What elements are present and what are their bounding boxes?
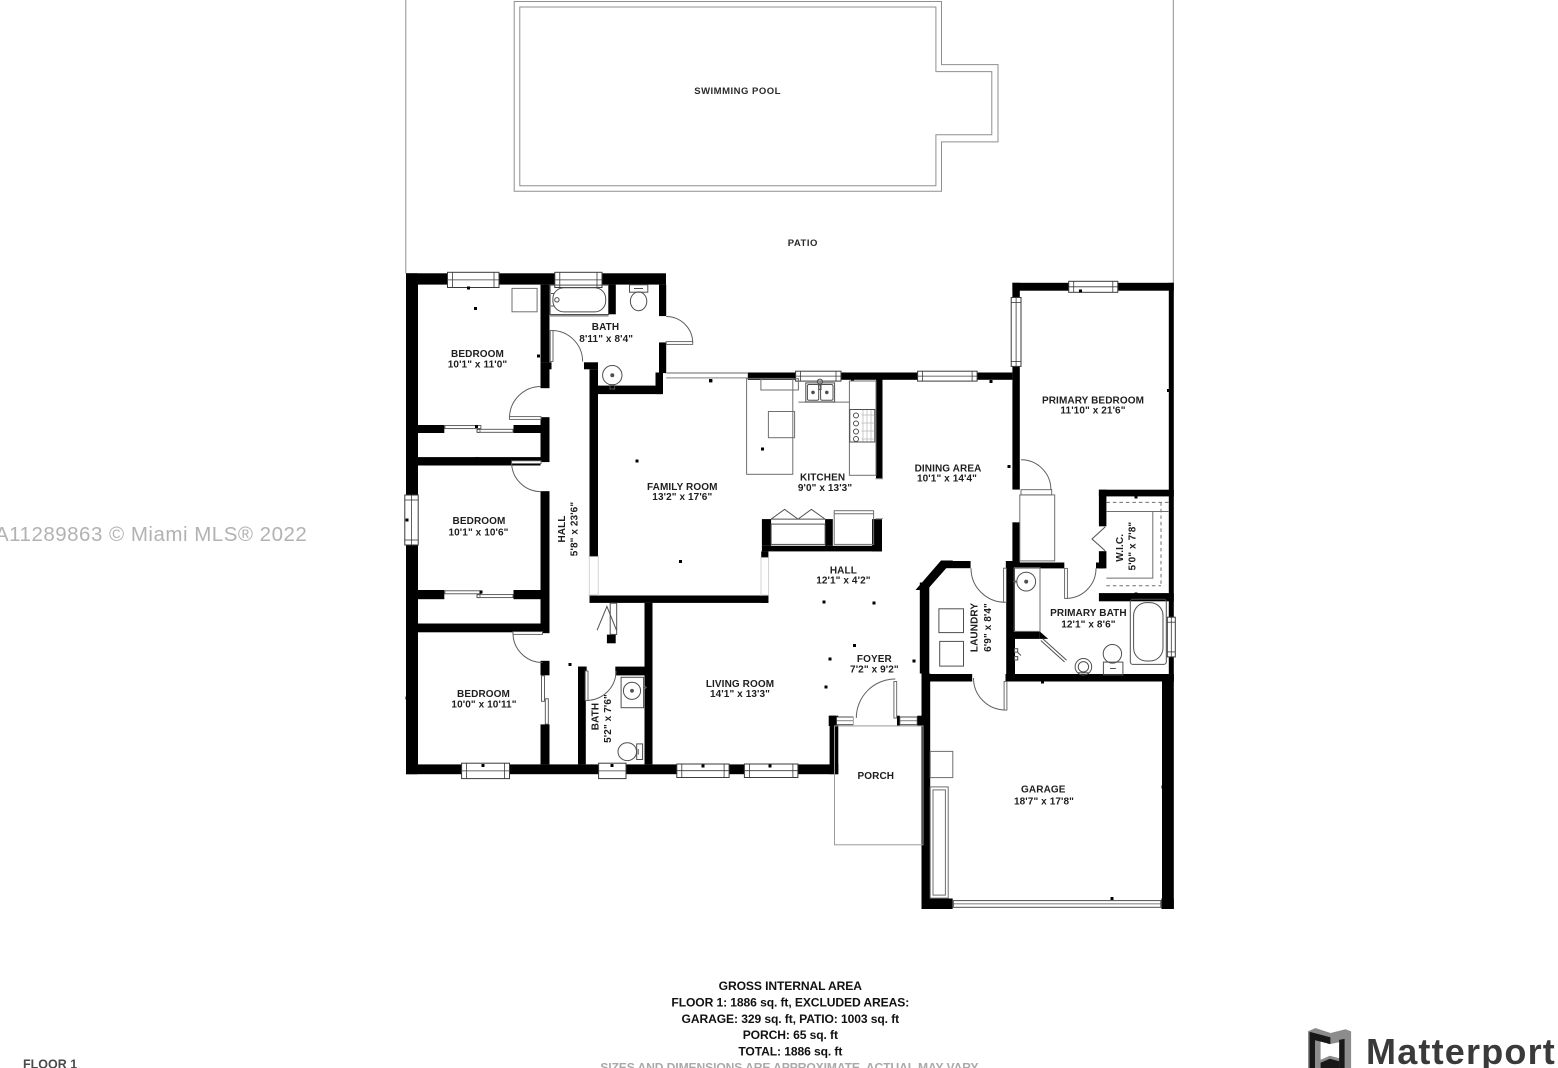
svg-text:8'11" x 8'4": 8'11" x 8'4" — [579, 334, 633, 345]
svg-text:12'1" x 8'6": 12'1" x 8'6" — [1061, 620, 1116, 631]
svg-text:6'9" x 8'4": 6'9" x 8'4" — [983, 603, 994, 652]
svg-text:13'2" x 17'6": 13'2" x 17'6" — [652, 492, 712, 503]
svg-text:5'8" x 23'6": 5'8" x 23'6" — [570, 502, 581, 557]
svg-text:TOTAL: 1886 sq. ft: TOTAL: 1886 sq. ft — [738, 1045, 842, 1059]
svg-text:FLOOR 1: 1886 sq. ft, EXCLUDED: FLOOR 1: 1886 sq. ft, EXCLUDED AREAS: — [671, 996, 909, 1010]
svg-text:18'7" x 17'8": 18'7" x 17'8" — [1014, 797, 1074, 808]
svg-text:BEDROOM: BEDROOM — [453, 516, 506, 527]
svg-text:GARAGE: GARAGE — [1021, 785, 1066, 796]
svg-text:PORCH: 65 sq. ft: PORCH: 65 sq. ft — [743, 1028, 838, 1042]
svg-text:PATIO: PATIO — [788, 238, 818, 249]
svg-text:Matterport: Matterport — [1366, 1031, 1556, 1068]
svg-text:HALL: HALL — [557, 515, 568, 542]
svg-text:GROSS INTERNAL AREA: GROSS INTERNAL AREA — [719, 979, 863, 993]
svg-text:10'1" x 11'0": 10'1" x 11'0" — [448, 359, 508, 370]
svg-text:5'2" x 7'6": 5'2" x 7'6" — [603, 694, 614, 743]
svg-text:12'1" x 4'2": 12'1" x 4'2" — [816, 575, 871, 586]
svg-text:SWIMMING POOL: SWIMMING POOL — [694, 86, 781, 97]
svg-text:FOYER: FOYER — [857, 654, 893, 665]
svg-text:PRIMARY BATH: PRIMARY BATH — [1050, 608, 1127, 619]
svg-text:FLOOR 1: FLOOR 1 — [23, 1058, 77, 1068]
svg-text:7'2" x 9'2": 7'2" x 9'2" — [850, 665, 899, 676]
svg-text:BATH: BATH — [592, 322, 619, 333]
svg-text:14'1" x 13'3": 14'1" x 13'3" — [710, 689, 770, 700]
svg-text:10'1" x 14'4": 10'1" x 14'4" — [917, 474, 977, 485]
svg-text:11'10" x 21'6": 11'10" x 21'6" — [1060, 406, 1125, 417]
svg-text:W.I.C.: W.I.C. — [1115, 534, 1126, 562]
svg-text:BEDROOM: BEDROOM — [457, 689, 510, 700]
svg-text:10'1" x 10'6": 10'1" x 10'6" — [448, 528, 508, 539]
svg-text:LAUNDRY: LAUNDRY — [970, 603, 981, 652]
svg-text:KITCHEN: KITCHEN — [800, 473, 845, 484]
svg-text:GARAGE: 329 sq. ft, PATIO: 100: GARAGE: 329 sq. ft, PATIO: 1003 sq. ft — [682, 1012, 900, 1026]
svg-text:9'0" x 13'3": 9'0" x 13'3" — [798, 483, 853, 494]
svg-text:5'0" x 7'8": 5'0" x 7'8" — [1127, 522, 1138, 571]
svg-text:PORCH: PORCH — [857, 771, 894, 782]
svg-text:SIZES AND DIMENSIONS ARE APPRO: SIZES AND DIMENSIONS ARE APPROXIMATE, AC… — [600, 1061, 980, 1068]
svg-text:A11289863 © Miami MLS® 2022: A11289863 © Miami MLS® 2022 — [0, 523, 307, 546]
svg-text:BATH: BATH — [591, 703, 602, 730]
svg-text:10'0" x 10'11": 10'0" x 10'11" — [451, 700, 516, 711]
